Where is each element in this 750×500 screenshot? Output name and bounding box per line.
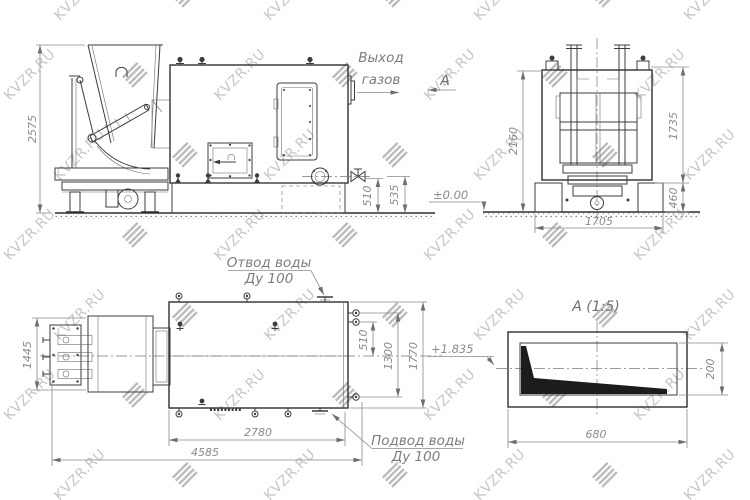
water-outlet-flange <box>317 297 333 302</box>
valve-icon <box>175 173 181 183</box>
valve-icon <box>198 57 206 65</box>
hatch-handle-arrow <box>213 160 220 164</box>
valve-icon <box>254 173 260 183</box>
feeder-base <box>55 168 168 212</box>
side-valve-icon <box>351 169 365 182</box>
view-a-label: А <box>439 73 450 89</box>
gas-outlet-label-1: Выход <box>358 50 404 66</box>
dim-510-plan-text: 510 <box>357 330 370 351</box>
dim-535: 535 <box>387 177 410 214</box>
side-view: Выход газов А ±0.00 2575 <box>26 45 484 219</box>
gas-outlet-label-2: газов <box>362 72 401 88</box>
dim-1300-text: 1300 <box>382 342 395 370</box>
boiler-plan-outline <box>169 302 348 408</box>
hook-mark <box>116 67 127 77</box>
feeder-plan <box>43 316 170 392</box>
dim-1735: 1735 <box>651 67 689 183</box>
valve-icon <box>176 57 184 65</box>
boiler-body-side <box>170 65 348 213</box>
pipes <box>566 45 630 165</box>
front-view: 2160 1735 460 1705 <box>483 38 700 233</box>
dim-1770-text: 1770 <box>407 342 420 370</box>
tipping-mechanism <box>69 76 150 168</box>
section-view: А (1:5) 680 200 <box>496 299 728 448</box>
dim-1445-text: 1445 <box>21 341 34 369</box>
gas-outlet: Выход газов <box>348 50 404 104</box>
elevation-zero-text: ±0.00 <box>433 188 468 202</box>
plan-right-fittings <box>348 310 359 400</box>
elevation-1835-text: +1.835 <box>431 342 474 356</box>
dim-510-side: 510 <box>361 179 383 214</box>
hopper <box>88 45 170 174</box>
dim-2780-text: 2780 <box>244 426 272 439</box>
water-inlet-text-1: Подвод воды <box>371 433 465 449</box>
dim-2160: 2160 <box>507 71 542 212</box>
front-drive <box>563 165 632 210</box>
drawing-page: KVZR.RUKVZR.RUKVZR.RUKVZR.RUKVZR.RUKVZR.… <box>0 0 750 500</box>
ground-hatch <box>55 214 435 219</box>
boiler-door <box>274 83 317 160</box>
dim-460-text: 460 <box>667 188 680 209</box>
dim-4585-text: 4585 <box>191 446 219 459</box>
plan-view: Отвод воды Ду 100 Подвод воды Ду 100 +1.… <box>21 255 494 466</box>
dim-680: 680 <box>508 409 687 448</box>
water-inlet-callout: Подвод воды Ду 100 <box>332 414 465 465</box>
scraper-wedge <box>521 346 667 394</box>
elevation-zero-mark: ±0.00 <box>429 188 484 210</box>
water-outlet-callout: Отвод воды Ду 100 <box>227 255 324 295</box>
water-outlet-text-2: Ду 100 <box>244 271 294 287</box>
dim-1300: 1300 <box>360 313 402 397</box>
technical-drawing: Выход газов А ±0.00 2575 <box>0 0 750 500</box>
section-title: А (1:5) <box>571 299 619 315</box>
plan-top-fittings <box>176 293 333 331</box>
water-inlet-text-2: Ду 100 <box>391 449 441 465</box>
valve-icon <box>306 57 314 65</box>
stud-rows <box>43 337 50 377</box>
dim-680-text: 680 <box>586 428 607 441</box>
dim-1735-text: 1735 <box>667 112 680 140</box>
water-outlet-text-1: Отвод воды <box>227 255 312 271</box>
dim-460: 460 <box>665 183 689 212</box>
water-inlet-flange <box>312 408 328 414</box>
foundation-block-right <box>638 183 663 212</box>
dim-4585: 4585 <box>52 382 362 466</box>
dim-2575-text: 2575 <box>26 115 39 143</box>
dim-2780: 2780 <box>169 410 345 446</box>
dim-510-side-text: 510 <box>361 186 374 207</box>
access-hatch <box>208 143 252 178</box>
dim-510-plan: 510 <box>357 322 377 356</box>
view-a-arrow: А <box>428 73 456 90</box>
top-valves <box>176 57 314 65</box>
dim-2160-text: 2160 <box>507 127 520 155</box>
dim-535-text: 535 <box>388 185 401 206</box>
foundation-block-left <box>535 183 562 212</box>
dim-200-text: 200 <box>704 359 717 380</box>
elevation-1835-mark: +1.835 <box>428 342 494 365</box>
dim-1705-text: 1705 <box>585 215 613 228</box>
